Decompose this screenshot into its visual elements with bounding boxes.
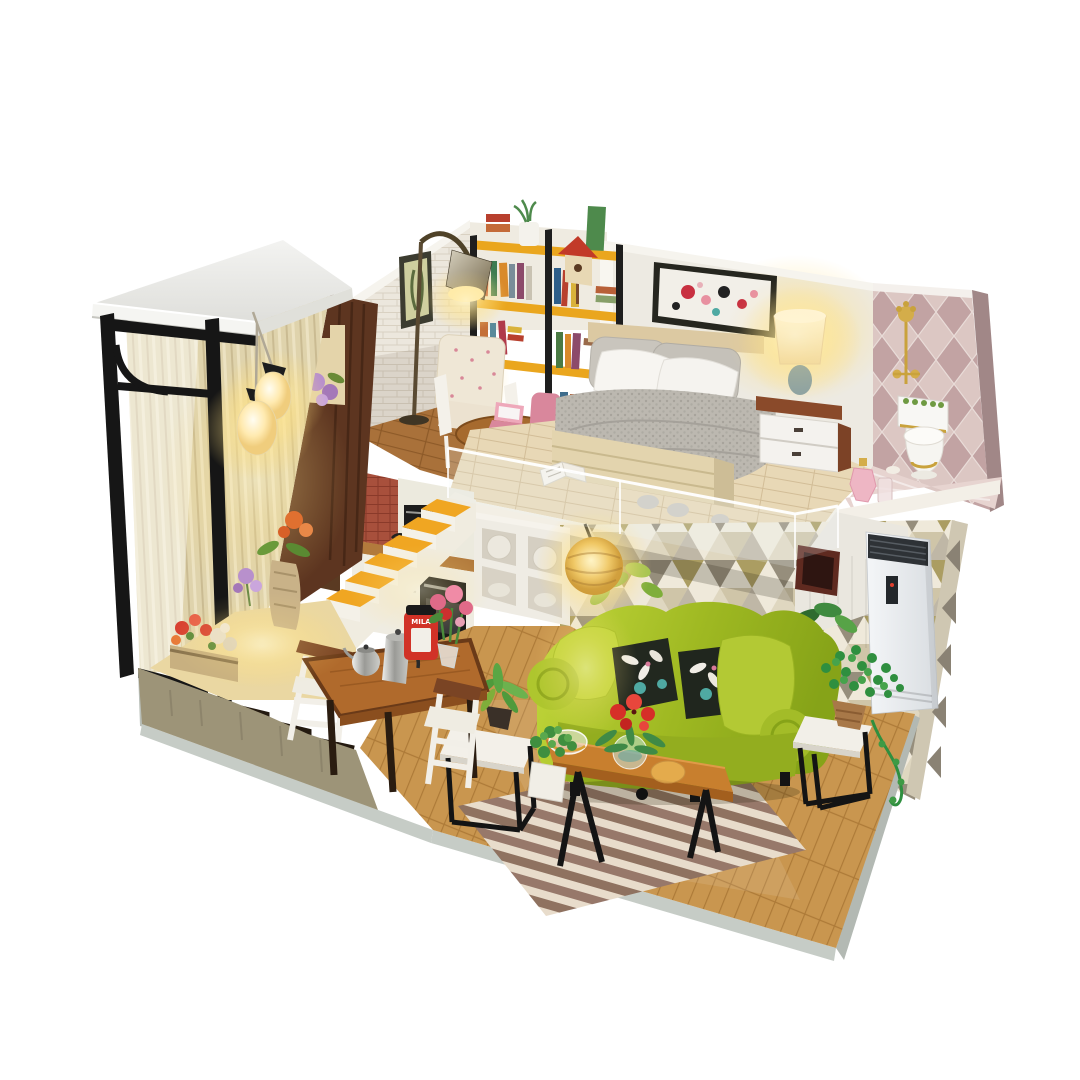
mila-coffee-machine: MILA: [404, 605, 438, 660]
product-photo-dollhouse: MILA: [0, 0, 1080, 1080]
table-lamp: [738, 286, 862, 398]
dollhouse-illustration: MILA: [0, 0, 1080, 1080]
amber-bowl: [651, 761, 685, 783]
nightstand: [756, 396, 851, 472]
tall-green-book: [586, 206, 606, 251]
coffee-machine-label: MILA: [411, 618, 431, 626]
